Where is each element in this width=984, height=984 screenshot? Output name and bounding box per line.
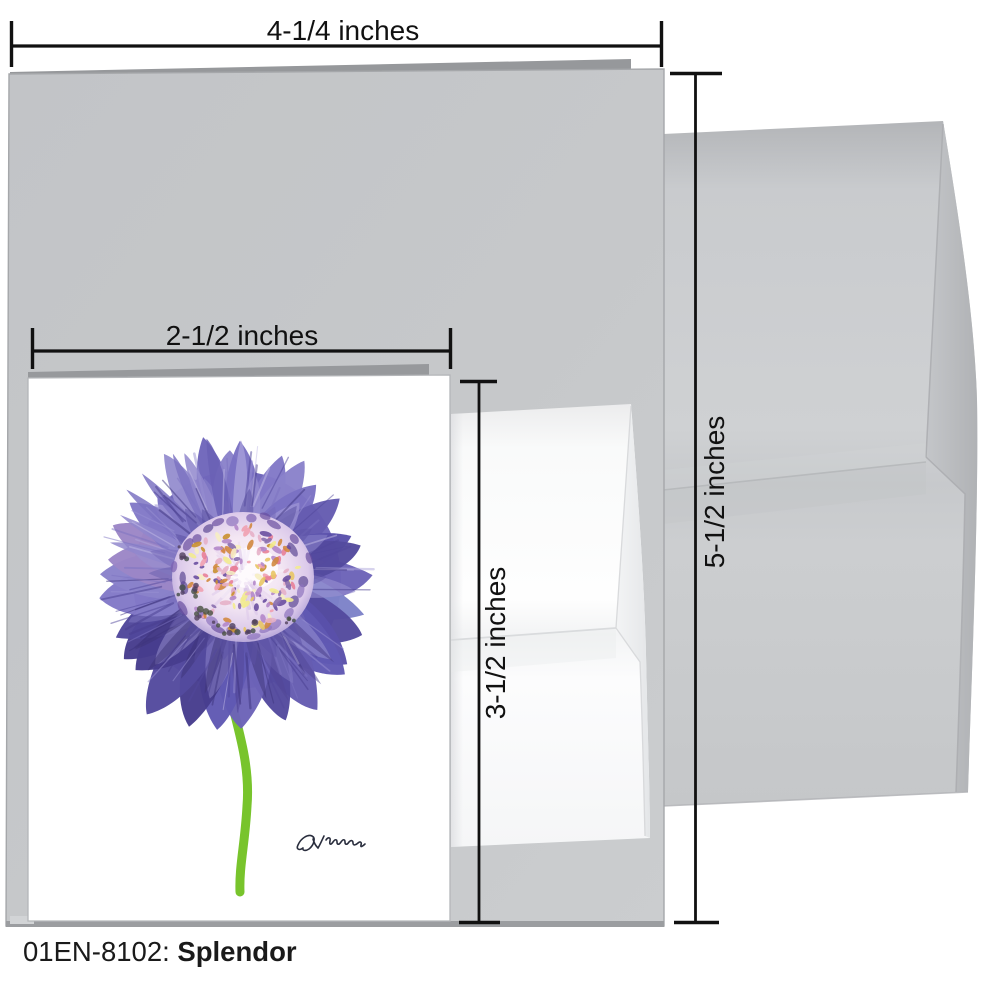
svg-text:4-1/4 inches: 4-1/4 inches: [267, 15, 420, 46]
svg-text:01EN-8102: Splendor: 01EN-8102: Splendor: [23, 936, 297, 967]
svg-text:3-1/2 inches: 3-1/2 inches: [480, 567, 511, 720]
svg-text:5-1/2 inches: 5-1/2 inches: [699, 416, 730, 569]
svg-text:2-1/2 inches: 2-1/2 inches: [166, 320, 319, 351]
